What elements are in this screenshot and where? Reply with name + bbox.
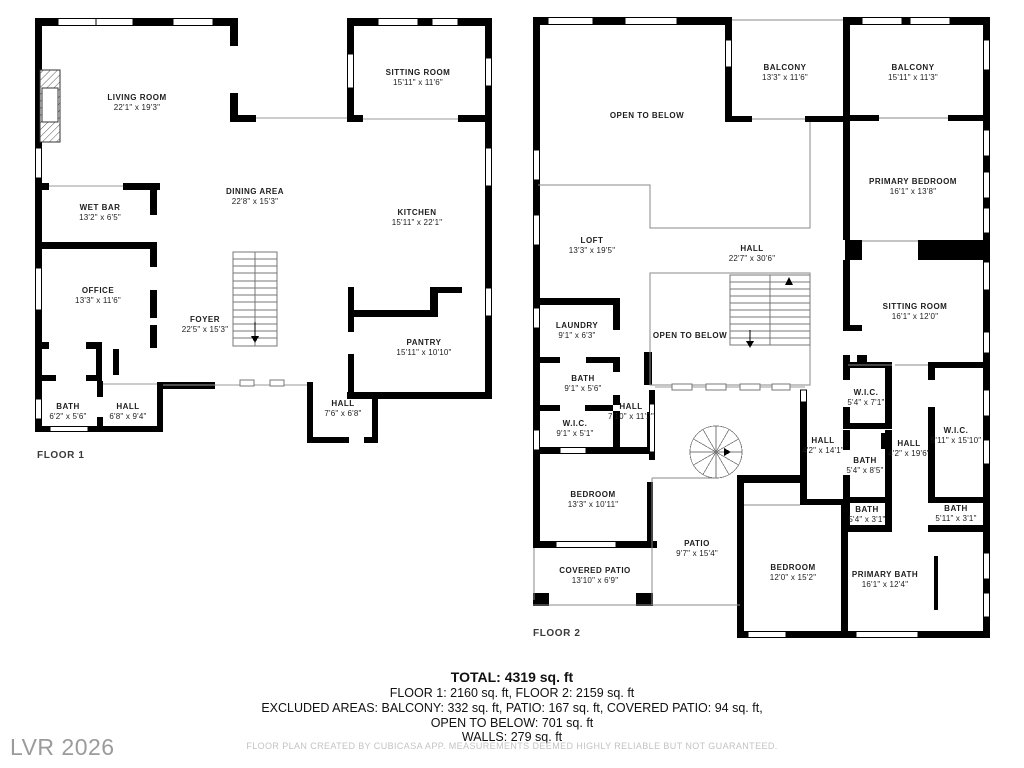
room-label-f2-sitting-room: SITTING ROOM 16'1" x 12'0" [883,302,948,322]
room-label-f2-balcony-1: BALCONY 13'3" x 11'6" [762,63,808,83]
floor2-tag: FLOOR 2 [533,628,581,639]
floorplan-walls-graphic [0,0,1024,768]
room-label-f2-covered-patio: COVERED PATIO 13'10" x 6'9" [559,566,631,586]
room-label-f2-bedroom-2: BEDROOM 12'0" x 15'2" [770,563,816,583]
room-label-f2-bath-2: BATH 5'4" x 8'5" [846,456,883,476]
room-label-f2-wic-1: W.I.C. 9'1" x 5'1" [556,419,593,439]
room-label-f2-primary-bath: PRIMARY BATH 16'1" x 12'4" [852,570,918,590]
area-summary: TOTAL: 4319 sq. ft FLOOR 1: 2160 sq. ft,… [0,669,1024,745]
room-label-f2-open-to-below-top: OPEN TO BELOW [610,111,684,121]
room-label-f2-wic-2: W.I.C. 5'4" x 7'1" [847,388,884,408]
room-label-f1-wet-bar: WET BAR 13'2" x 6'5" [79,203,121,223]
room-label-f2-hall-2: HALL 7'10" x 11'2" [608,402,654,422]
room-label-f1-living-room: LIVING ROOM 22'1" x 19'3" [107,93,166,113]
room-label-f2-hall-3: HALL 4'2" x 14'1" [802,436,844,456]
room-label-f2-hall-4: HALL 4'2" x 19'6" [888,439,930,459]
excluded-areas-text-2: OPEN TO BELOW: 701 sq. ft [0,716,1024,731]
disclaimer-text: FLOOR PLAN CREATED BY CUBICASA APP. MEAS… [0,741,1024,751]
room-label-f1-foyer: FOYER 22'5" x 15'3" [182,315,228,335]
room-label-f1-hall-1: HALL 6'8" x 9'4" [109,402,146,422]
room-label-f2-laundry: LAUNDRY 9'1" x 6'3" [556,321,598,341]
floor-areas-text: FLOOR 1: 2160 sq. ft, FLOOR 2: 2159 sq. … [0,686,1024,701]
room-label-f2-wic-3: W.I.C. 5'11" x 15'10" [931,426,982,446]
room-label-f1-office: OFFICE 13'3" x 11'6" [75,286,121,306]
room-label-f2-hall-main: HALL 22'7" x 30'6" [729,244,775,264]
room-label-f2-primary-bedroom: PRIMARY BEDROOM 16'1" x 13'8" [869,177,957,197]
room-label-f1-hall-2: HALL 7'6" x 6'8" [324,399,361,419]
room-label-f2-bedroom-1: BEDROOM 13'3" x 10'11" [568,490,619,510]
room-label-f2-patio: PATIO 9'7" x 15'4" [676,539,718,559]
room-label-f2-bath-3: BATH 5'4" x 3'1" [848,505,885,525]
watermark-text: LVR 2026 [10,734,115,761]
room-label-f2-bath-4: BATH 5'11" x 3'1" [935,504,976,524]
room-label-f2-open-to-below-center: OPEN TO BELOW [653,331,727,341]
room-label-f2-bath-1: BATH 9'1" x 5'6" [564,374,601,394]
excluded-areas-text-1: EXCLUDED AREAS: BALCONY: 332 sq. ft, PAT… [0,701,1024,716]
room-label-f2-loft: LOFT 13'3" x 19'5" [569,236,615,256]
room-label-f1-sitting-room: SITTING ROOM 15'11" x 11'6" [386,68,451,88]
room-label-f1-dining-area: DINING AREA 22'8" x 15'3" [226,187,284,207]
floorplan-page: LIVING ROOM 22'1" x 19'3" SITTING ROOM 1… [0,0,1024,768]
room-label-f2-balcony-2: BALCONY 15'11" x 11'3" [888,63,938,83]
room-label-f1-pantry: PANTRY 15'11" x 10'10" [396,338,451,358]
floor1-tag: FLOOR 1 [37,450,85,461]
room-label-f1-kitchen: KITCHEN 15'11" x 22'1" [392,208,443,228]
total-area-text: TOTAL: 4319 sq. ft [0,669,1024,685]
room-label-f1-bath: BATH 6'2" x 5'6" [49,402,86,422]
